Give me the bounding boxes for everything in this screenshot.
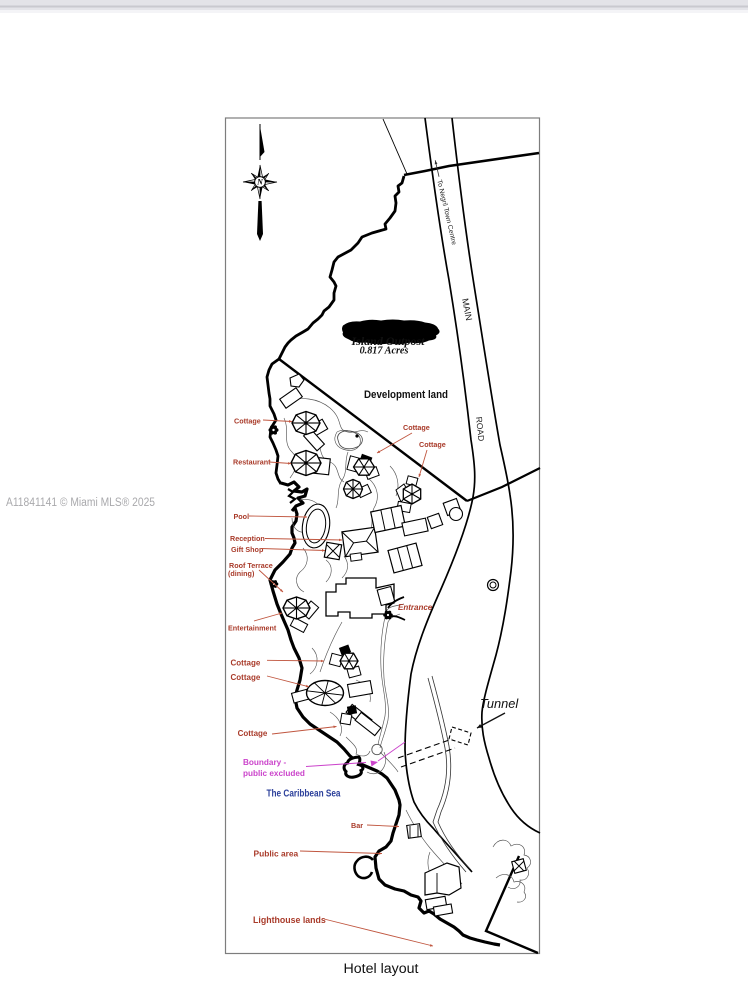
svg-text:Cottage: Cottage — [419, 440, 446, 449]
svg-text:Restaurant: Restaurant — [233, 458, 271, 467]
svg-text:The Caribbean Sea: The Caribbean Sea — [267, 788, 341, 800]
svg-text:Cottage: Cottage — [238, 729, 268, 738]
svg-text:Tunnel: Tunnel — [480, 696, 519, 711]
svg-text:Development land: Development land — [364, 389, 448, 401]
svg-text:MAIN: MAIN — [460, 297, 474, 321]
svg-text:Cottage: Cottage — [231, 673, 261, 682]
svg-text:Cottage: Cottage — [234, 417, 261, 426]
svg-text:public excluded: public excluded — [243, 769, 305, 778]
svg-text:A11841141 © Miami MLS® 2025: A11841141 © Miami MLS® 2025 — [6, 497, 155, 509]
svg-text:Reception: Reception — [230, 534, 265, 543]
svg-text:Pool: Pool — [234, 512, 250, 521]
svg-text:Entertainment: Entertainment — [228, 624, 277, 633]
svg-text:Boundary -: Boundary - — [243, 758, 286, 767]
svg-text:Gift Shop: Gift Shop — [231, 545, 264, 554]
svg-text:Public area: Public area — [254, 849, 299, 859]
svg-text:ROAD: ROAD — [474, 416, 487, 441]
svg-text:Entrance: Entrance — [398, 603, 433, 612]
svg-text:Hotel layout: Hotel layout — [344, 961, 419, 976]
svg-text:Cottage: Cottage — [403, 423, 430, 432]
svg-text:0.817 Acres: 0.817 Acres — [360, 346, 409, 357]
svg-text:Bar: Bar — [351, 821, 363, 830]
svg-text:Cottage: Cottage — [231, 659, 261, 668]
svg-text:(dining): (dining) — [228, 569, 255, 578]
svg-text:Lighthouse lands: Lighthouse lands — [253, 915, 326, 925]
